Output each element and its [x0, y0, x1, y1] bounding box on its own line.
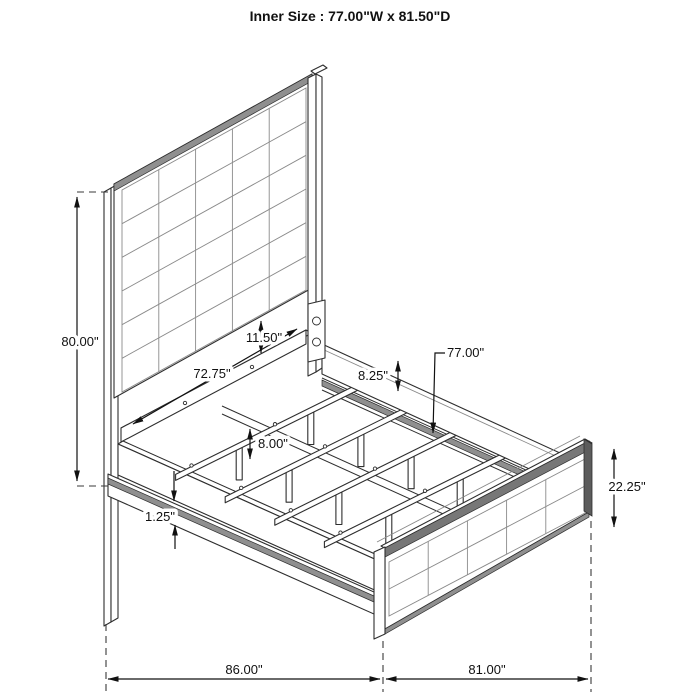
dim-footboard-height-label: 22.25"	[608, 479, 646, 494]
dim-headboard-height-label: 80.00"	[61, 334, 99, 349]
dim-slat-span-label: 72.75"	[193, 366, 231, 381]
dim-panel-gap-label: 11.50"	[246, 330, 283, 345]
diagram-svg: Inner Size : 77.00"W x 81.50"D 80.00" 11…	[0, 0, 700, 700]
dim-overall-width-label: 81.00"	[468, 662, 506, 677]
headboard-left-post	[104, 188, 111, 626]
dim-base-thickness-label: 1.25"	[145, 509, 175, 524]
rail-bracket	[308, 300, 325, 362]
dim-rail-height-label: 8.25"	[358, 368, 388, 383]
dim-overall-depth-label: 86.00"	[225, 662, 263, 677]
footboard-near-post	[374, 547, 385, 639]
dim-slat-length-label: 77.00"	[447, 345, 485, 360]
dim-leg-height-label: 8.00"	[258, 436, 288, 451]
footboard-far-post	[584, 439, 592, 516]
bed-dimension-diagram: Inner Size : 77.00"W x 81.50"D 80.00" 11…	[0, 0, 700, 700]
slat-leg	[236, 448, 242, 480]
title-label: Inner Size : 77.00"W x 81.50"D	[250, 8, 451, 24]
